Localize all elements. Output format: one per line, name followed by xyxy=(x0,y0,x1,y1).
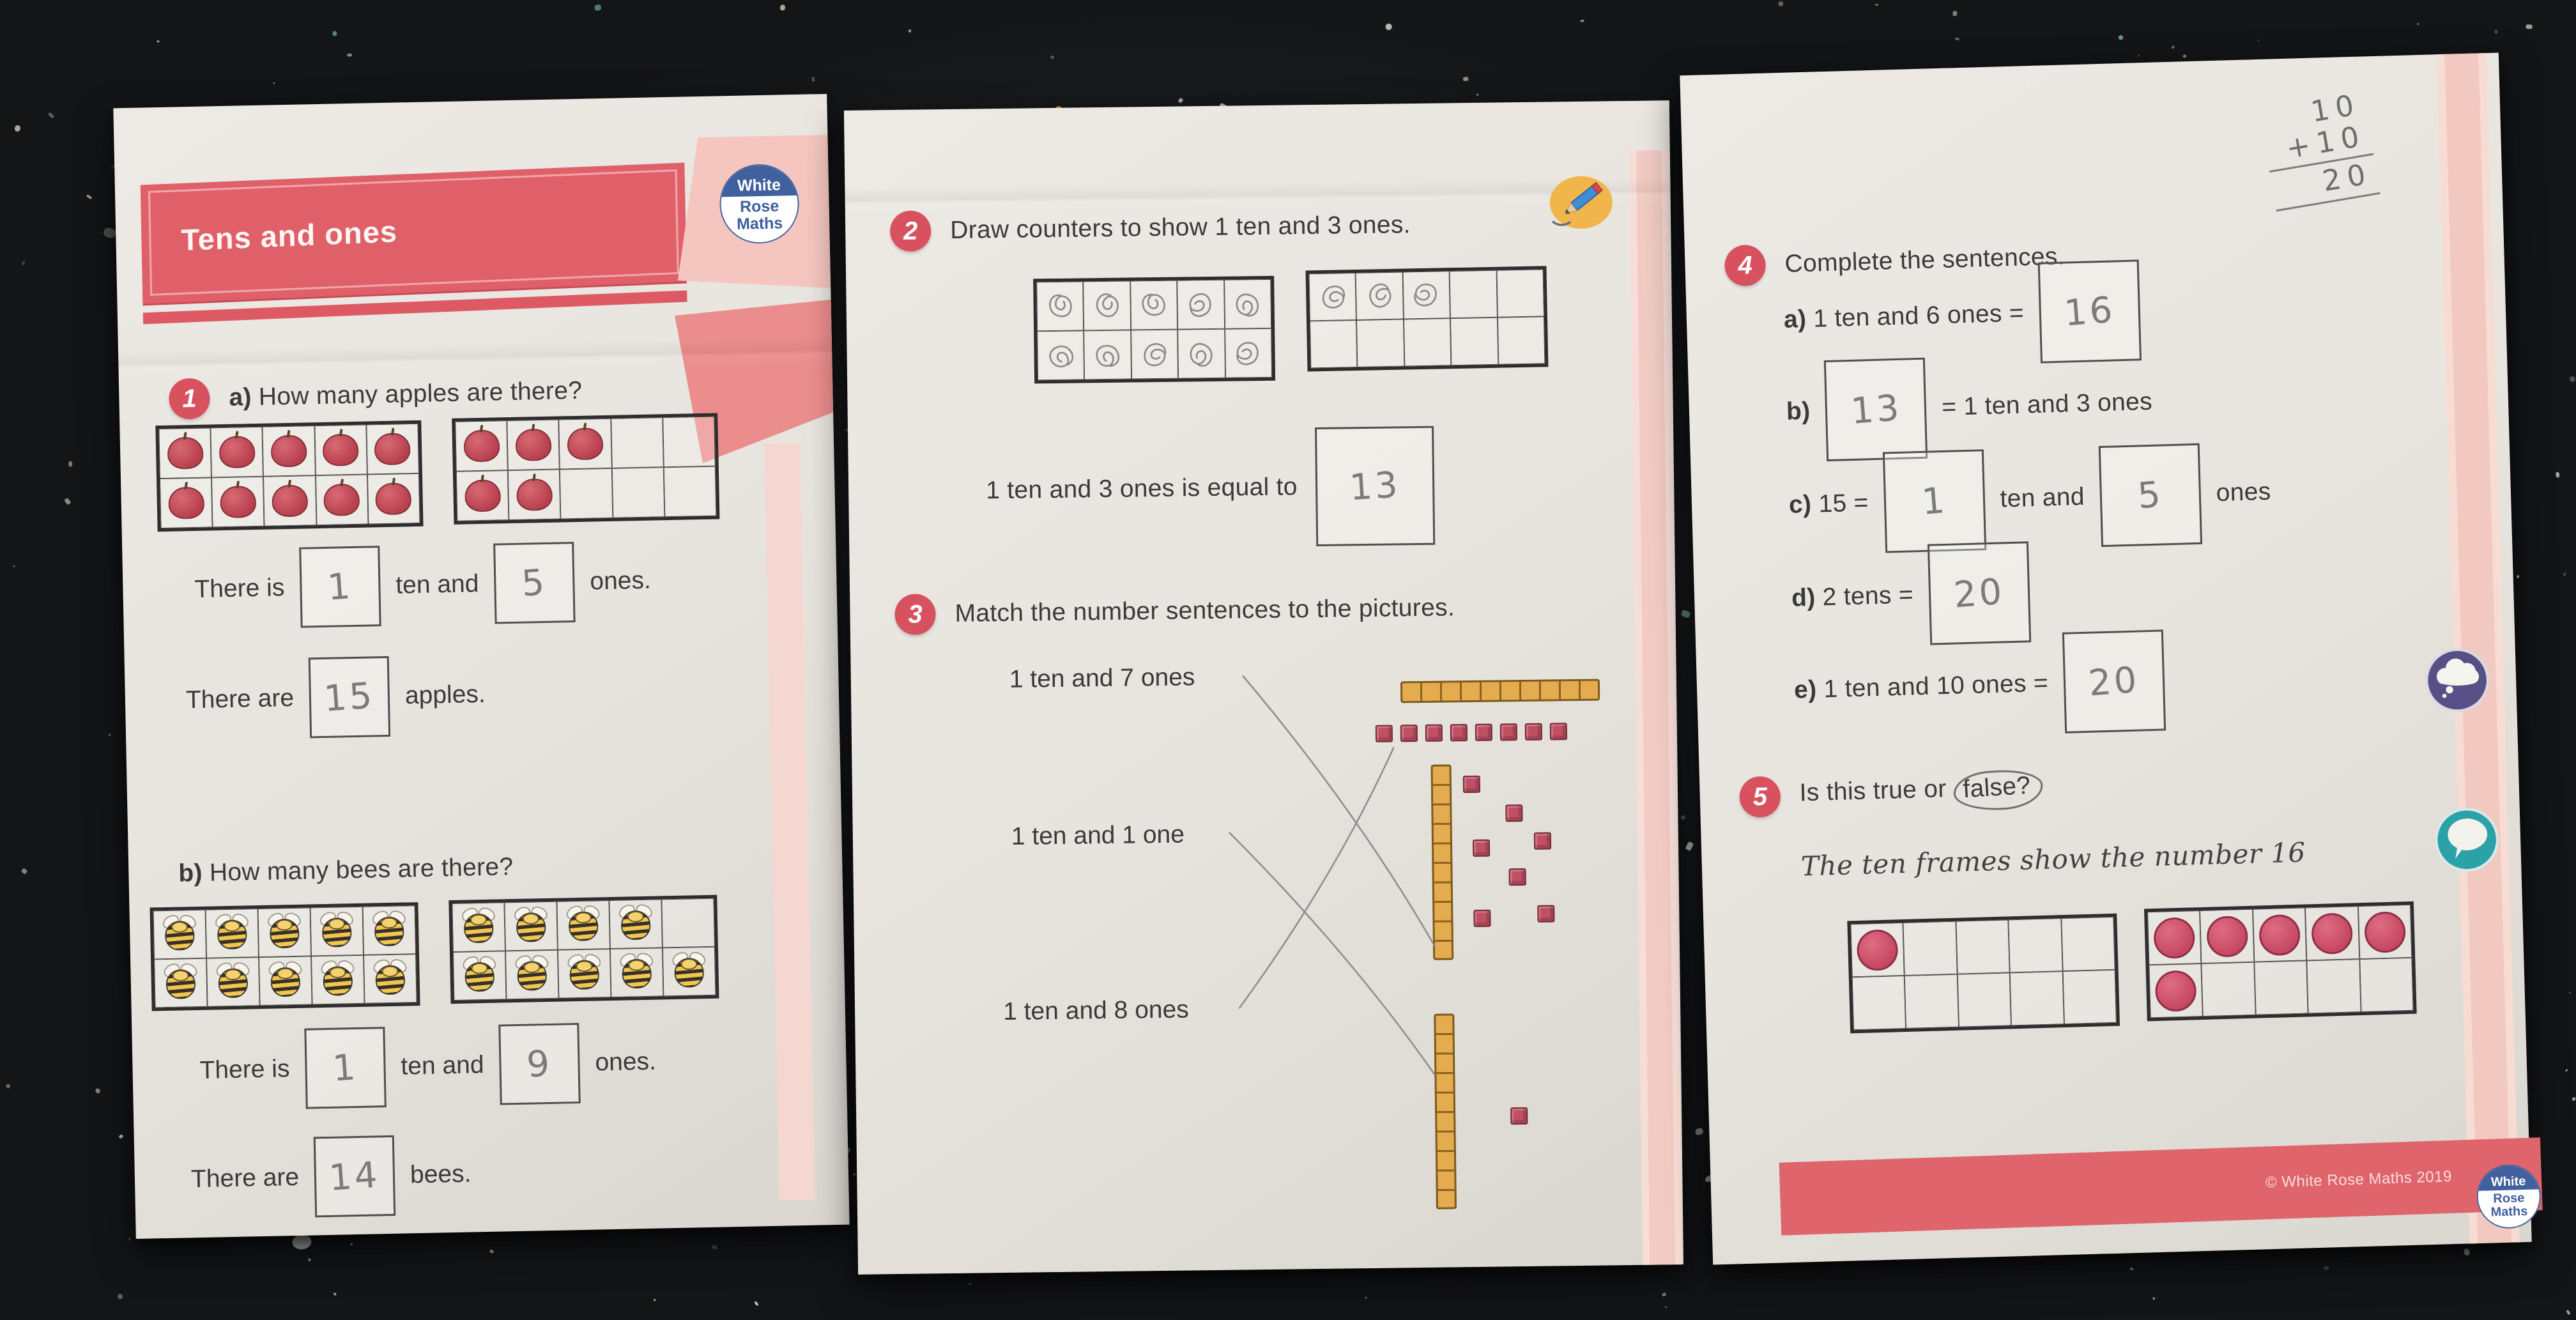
floor-speckle xyxy=(333,1292,337,1296)
floor-speckle xyxy=(1875,4,1878,6)
q4-row-e: e) 1 ten and 10 ones = 20 xyxy=(1793,629,2166,741)
ten-frame-cell xyxy=(1404,318,1452,366)
question-number-badge: 2 xyxy=(890,210,931,252)
ten-frame-cell xyxy=(1956,919,2010,974)
floor-speckle xyxy=(1687,1011,1687,1012)
worksheet-page-middle: 2 Draw counters to show 1 ten and 3 ones… xyxy=(844,100,1683,1275)
ones-cube xyxy=(1463,776,1480,793)
counter-dot xyxy=(2311,912,2354,955)
apple-icon xyxy=(168,487,204,519)
think-bubble-sticker xyxy=(2423,646,2492,714)
ten-frame-cell xyxy=(1356,319,1404,367)
answer-box: 13 xyxy=(1315,426,1435,546)
apple-icon xyxy=(323,434,359,466)
question-1b-text: b) How many bees are there? xyxy=(178,853,514,888)
apple-icon xyxy=(374,433,411,465)
ten-frame-cell xyxy=(1957,972,2011,1027)
ten-frame-cell xyxy=(456,470,509,521)
ones-cube xyxy=(1537,905,1554,922)
ten-frame-cell xyxy=(663,417,716,468)
ten-frame-cell xyxy=(452,902,505,952)
ten-frame-cell xyxy=(206,957,260,1007)
ten-frame-cell xyxy=(664,466,717,518)
ten-frame-cell xyxy=(2307,959,2361,1013)
floor-speckle xyxy=(2495,30,2498,34)
drawn-counter-scribble xyxy=(1090,337,1126,373)
apple-icon xyxy=(376,482,412,515)
answer-box: 14 xyxy=(314,1135,396,1218)
ten-frame-cell xyxy=(611,417,664,468)
sentence-total-apples: There are 15 apples. xyxy=(185,654,486,741)
ten-frame-cell xyxy=(310,907,364,956)
floor-speckle xyxy=(2569,992,2572,994)
counter-dot xyxy=(2206,915,2248,957)
ones-cube xyxy=(1510,1107,1528,1124)
ten-frame-cell xyxy=(505,950,559,1000)
floor-speckle xyxy=(86,194,93,200)
floor-speckle xyxy=(711,1245,717,1250)
ones-cube xyxy=(1508,868,1526,886)
ten-frame-cell xyxy=(558,949,611,999)
tens-rod xyxy=(1400,679,1600,703)
drawn-counter-scribble xyxy=(1232,337,1265,370)
apple-icon xyxy=(220,486,256,518)
floor-speckle xyxy=(930,1275,932,1276)
cube-row xyxy=(1376,723,1567,742)
tens-rod xyxy=(1430,764,1453,960)
floor-speckle xyxy=(2569,376,2576,383)
ten-frame-cell xyxy=(2359,958,2414,1012)
question-3-text: Match the number sentences to the pictur… xyxy=(954,594,1455,628)
answer-box: 1 xyxy=(304,1027,387,1109)
ten-frame-cell xyxy=(2305,906,2359,960)
ten-frame-cell xyxy=(153,910,207,960)
bee-icon xyxy=(462,960,498,992)
ones-cube xyxy=(1473,840,1490,857)
ten-frame-cell xyxy=(1224,279,1271,329)
logo-line-white: White xyxy=(720,165,797,197)
drawn-counter-scribble xyxy=(1045,291,1076,322)
ten-frame-drawn-part xyxy=(1305,266,1548,371)
ten-frame-cell xyxy=(2254,960,2308,1015)
tens-rod xyxy=(1434,1013,1457,1209)
floor-speckle xyxy=(2572,1096,2576,1101)
floor-speckle xyxy=(1666,1307,1667,1308)
ten-frame-apples-part xyxy=(452,413,719,525)
ten-frame-cell xyxy=(314,425,367,476)
floor-speckle xyxy=(908,29,912,33)
ten-frame-cell xyxy=(2061,917,2115,971)
ten-frame-cell xyxy=(1309,273,1357,321)
ones-cube xyxy=(1500,723,1517,741)
floor-speckle xyxy=(1581,20,1584,22)
pencil-circled-word: false? xyxy=(1952,767,2044,813)
bee-icon xyxy=(619,956,655,989)
floor-speckle xyxy=(350,1243,353,1246)
pencil-icon xyxy=(1544,165,1616,233)
floor-speckle xyxy=(2516,574,2520,579)
floor-speckle xyxy=(347,54,352,57)
ten-frame-cell xyxy=(158,427,211,479)
bee-icon xyxy=(671,955,707,988)
floor-speckle xyxy=(2566,1309,2571,1315)
bee-icon xyxy=(268,965,303,997)
floor-speckle xyxy=(68,461,72,467)
floor-speckle xyxy=(2257,40,2259,42)
white-rose-maths-logo: White Rose Maths xyxy=(719,164,799,244)
apple-icon xyxy=(464,479,501,512)
floor-speckle xyxy=(780,4,786,11)
floor-speckle xyxy=(968,1282,971,1285)
answer-box: 15 xyxy=(309,656,391,739)
ten-frame-cell xyxy=(366,424,419,475)
answer-box: 5 xyxy=(2099,443,2202,547)
floor-speckle xyxy=(332,31,337,36)
answer-box: 20 xyxy=(1928,541,2031,645)
question-5-header: 5 Is this true or false? xyxy=(1739,769,2044,818)
ten-frame-cell xyxy=(1177,329,1225,379)
ten-frame-cell xyxy=(2200,909,2254,963)
bee-icon xyxy=(215,966,251,999)
ten-frame-cell xyxy=(263,475,316,526)
bee-icon xyxy=(214,917,250,950)
floor-speckle xyxy=(2462,1248,2471,1257)
bee-icon xyxy=(162,918,197,951)
ones-cube xyxy=(1425,725,1443,742)
match-sentence-2: 1 ten and 1 one xyxy=(1011,821,1185,851)
ten-frame-cell xyxy=(661,898,715,948)
answer-box: 16 xyxy=(2038,259,2142,363)
counter-dot xyxy=(2155,970,2197,1012)
ten-frame-cell xyxy=(560,468,613,519)
floor-speckle xyxy=(118,1133,123,1139)
ten-frame-cell xyxy=(364,954,417,1004)
counter-dot xyxy=(2364,911,2406,953)
floor-speckle xyxy=(1050,55,1054,59)
ten-frame-cell xyxy=(2149,963,2203,1018)
ten-frame-cell xyxy=(508,469,561,520)
ten-frame-cell xyxy=(1225,328,1272,378)
ten-frame-cell xyxy=(2358,905,2412,959)
ten-frame-cell xyxy=(1356,272,1404,320)
floor-speckle xyxy=(21,868,28,875)
ones-cube xyxy=(1450,724,1468,741)
floor-speckle xyxy=(2183,55,2187,58)
ten-frame-cell xyxy=(1036,281,1084,331)
floor-speckle xyxy=(2138,55,2140,58)
question-2-text: Draw counters to show 1 ten and 3 ones. xyxy=(950,211,1411,245)
ten-frame-cell xyxy=(154,958,208,1008)
ten-frame-cell xyxy=(211,427,264,478)
apple-icon xyxy=(515,429,551,461)
floor-speckle xyxy=(14,125,22,132)
floor-speckle xyxy=(1685,841,1694,851)
ten-frame-cell xyxy=(1450,270,1498,318)
floor-speckle xyxy=(48,112,55,119)
floor-speckle xyxy=(2564,1069,2568,1071)
drawn-counter-scribble xyxy=(1183,335,1220,372)
ten-frame-cell xyxy=(1905,974,1959,1029)
ten-frame-cell xyxy=(507,419,560,470)
floor-speckle xyxy=(2152,1297,2154,1300)
floor-speckle xyxy=(2171,45,2175,49)
ten-frame-cell xyxy=(206,909,259,958)
copyright-text: © White Rose Maths 2019 xyxy=(2265,1168,2453,1192)
bee-icon xyxy=(320,963,356,996)
ones-cube xyxy=(1473,910,1491,927)
match-sentence-3: 1 ten and 8 ones xyxy=(1003,995,1189,1026)
floor-speckle xyxy=(2130,1268,2134,1271)
ten-frame-cell xyxy=(211,477,264,528)
ten-frame-cell xyxy=(2062,970,2117,1024)
floor-speckle xyxy=(811,77,815,82)
bee-icon xyxy=(266,916,302,949)
ten-frame-cell xyxy=(1498,316,1545,364)
ten-frame-cell xyxy=(1177,280,1224,330)
ten-frame-cell xyxy=(1084,281,1131,331)
footer-bar: © White Rose Maths 2019 xyxy=(1779,1137,2543,1235)
ones-cube xyxy=(1475,724,1492,741)
ten-frame-cell xyxy=(610,948,664,997)
bee-icon xyxy=(513,910,549,942)
floor-speckle xyxy=(653,1298,656,1301)
bee-icon xyxy=(372,963,408,995)
ten-frame-counters-1 xyxy=(1847,914,2120,1034)
floor-speckle xyxy=(1662,1293,1667,1298)
counter-dot xyxy=(2258,914,2301,956)
floor-speckle xyxy=(1385,23,1392,30)
question-2-header: 2 Draw counters to show 1 ten and 3 ones… xyxy=(890,204,1411,252)
title-banner: Tens and ones xyxy=(141,163,687,304)
floor-speckle xyxy=(2324,1266,2329,1270)
floor-speckle xyxy=(13,565,15,567)
answer-box: 13 xyxy=(1824,358,1928,461)
ten-frame-cell xyxy=(259,956,312,1006)
ten-frame-cell xyxy=(1402,271,1450,319)
drawn-counter-scribble xyxy=(1088,287,1126,325)
ten-frame-cell xyxy=(1852,976,1906,1030)
floor-speckle xyxy=(2418,23,2419,25)
floor-speckle xyxy=(21,261,26,266)
drawn-counter-scribble xyxy=(1040,335,1081,376)
page-edge-strip xyxy=(764,443,815,1201)
question-number-badge: 1 xyxy=(169,378,210,419)
ones-cube xyxy=(1400,725,1418,742)
ten-frame-cell xyxy=(2147,910,2202,965)
floor-speckle xyxy=(1680,815,1686,820)
match-sentence-1: 1 ten and 7 ones xyxy=(1009,663,1195,694)
bee-icon xyxy=(319,915,355,948)
drawn-counter-scribble xyxy=(1359,275,1400,316)
apple-icon xyxy=(463,429,500,462)
floor-speckle xyxy=(1695,1127,1704,1136)
ten-frame-cell xyxy=(1450,318,1498,365)
floor-speckle xyxy=(102,226,117,239)
ten-frame-cell xyxy=(609,899,663,949)
floor-speckle xyxy=(1952,11,1957,16)
ten-frame-cell xyxy=(2253,907,2307,962)
logo-line-white: White xyxy=(2477,1165,2539,1191)
apple-icon xyxy=(167,437,203,470)
question-1-header: 1 a) How many apples are there? xyxy=(169,371,583,420)
ten-frame-cell xyxy=(1310,320,1358,368)
question-3-header: 3 Match the number sentences to the pict… xyxy=(894,587,1455,635)
drawn-counter-scribble xyxy=(1232,288,1264,320)
ten-frame-cell xyxy=(1496,269,1544,317)
floor-speckle xyxy=(753,1301,758,1306)
floor-speckle xyxy=(157,40,160,43)
ten-frame-cell xyxy=(453,951,507,1001)
ten-frame-cell xyxy=(367,473,420,525)
drawn-counter-scribble xyxy=(1182,286,1220,323)
answer-box: 5 xyxy=(493,542,576,624)
ten-frame-cell xyxy=(1850,923,1905,977)
drawn-counter-scribble xyxy=(1411,279,1442,311)
floor-speckle xyxy=(2117,35,2124,40)
drawn-counter-scribble xyxy=(1138,339,1170,371)
ten-frame-cell xyxy=(663,947,716,997)
q4-row-c: c) 15 = 1 ten and 5 ones xyxy=(1788,441,2273,556)
worksheet-page-left: Tens and ones White Rose Maths 1 a) How … xyxy=(113,94,849,1239)
floor-speckle xyxy=(489,1249,494,1254)
ten-frame-cell xyxy=(258,907,312,957)
floor-speckle xyxy=(273,82,275,84)
counter-dot xyxy=(2154,917,2196,959)
logo-line-maths: Maths xyxy=(2478,1204,2540,1221)
bee-icon xyxy=(514,958,550,991)
ten-frame-cell xyxy=(455,420,508,472)
ones-cube xyxy=(1525,723,1542,741)
ten-frame-cell xyxy=(556,900,610,950)
ones-cube xyxy=(1534,833,1551,850)
ten-frame-cell xyxy=(611,467,664,518)
ones-cube xyxy=(1376,725,1393,742)
worksheet-page-right: 10 +10 20 4 Complete the sentences. a) 1… xyxy=(1680,52,2531,1264)
answer-box: 1 xyxy=(1882,449,1986,553)
answer-box: 9 xyxy=(498,1023,581,1105)
apple-icon xyxy=(271,434,307,467)
ten-frame-cell xyxy=(504,902,558,951)
floor-speckle xyxy=(853,1173,856,1176)
answer-box: 20 xyxy=(2062,629,2166,733)
ten-frame-bees-part xyxy=(448,895,719,1004)
ten-frame-counters-6 xyxy=(2144,902,2417,1022)
floor-speckle xyxy=(117,1293,123,1300)
floor-speckle xyxy=(1365,1297,1367,1299)
question-number-badge: 3 xyxy=(894,594,936,635)
ten-frame-cell xyxy=(1131,330,1178,380)
ones-cube xyxy=(1505,804,1522,822)
ten-frame-cell xyxy=(1130,280,1177,330)
q4-row-d: d) 2 tens = 20 xyxy=(1790,541,2031,648)
question-1a-text: a) How many apples are there? xyxy=(229,377,583,412)
floor-speckle xyxy=(2526,25,2532,30)
base-ten-picture-11 xyxy=(1430,1011,1650,1225)
apple-icon xyxy=(323,484,360,516)
ten-frame-cell xyxy=(2202,962,2256,1017)
sentence-total-bees: There are 14 bees. xyxy=(190,1133,472,1220)
ones-cube xyxy=(1550,723,1567,740)
apple-icon xyxy=(218,436,255,468)
floor-speckle xyxy=(6,1084,11,1088)
bee-icon xyxy=(565,909,601,941)
bee-icon xyxy=(618,908,654,940)
base-ten-picture-17 xyxy=(1427,762,1646,976)
floor-speckle xyxy=(63,498,71,505)
answer-box: 1 xyxy=(299,546,381,628)
ten-frame-bees-full xyxy=(149,902,420,1011)
floor-speckle xyxy=(292,1234,312,1250)
ten-frame-cell xyxy=(263,426,316,477)
bee-icon xyxy=(371,914,407,947)
question-number-badge: 4 xyxy=(1724,245,1767,287)
speech-bubble-sticker xyxy=(2433,806,2501,874)
counter-dot xyxy=(1857,929,1899,971)
pencil-column-addition: 10 +10 20 xyxy=(2252,88,2380,215)
floor-speckle xyxy=(308,1259,311,1261)
ten-frame-cell xyxy=(363,905,417,955)
ten-frame-cell xyxy=(311,955,365,1005)
page-title: Tens and ones xyxy=(181,213,397,257)
floor-speckle xyxy=(1681,610,1691,618)
drawn-counter-scribble xyxy=(1137,288,1171,322)
ten-frame-cell xyxy=(2009,918,2063,972)
ten-frame-cell xyxy=(2010,971,2064,1025)
floor-speckle xyxy=(1777,1,1784,8)
ten-frame-cell xyxy=(559,418,612,470)
question-number-badge: 5 xyxy=(1739,776,1781,818)
ten-frame-cell xyxy=(160,477,213,528)
floor-speckle xyxy=(109,734,111,736)
ten-frame-drawn-full xyxy=(1033,276,1275,384)
ten-frame-cell xyxy=(316,475,369,526)
drawn-counter-scribble xyxy=(1318,282,1348,312)
pencil-match-line xyxy=(1230,831,1435,1077)
question-1b-header: b) How many bees are there? xyxy=(178,853,514,888)
floor-speckle xyxy=(1463,77,1469,82)
ten-frame-cell xyxy=(1084,330,1131,380)
floor-speckle xyxy=(95,1087,102,1094)
q5-statement: The ten frames show the number 16 xyxy=(1800,836,2306,882)
floor-speckle xyxy=(594,4,601,12)
floor-speckle xyxy=(1177,97,1183,104)
apple-icon xyxy=(567,427,604,460)
bee-icon xyxy=(567,957,602,990)
floor-speckle xyxy=(1289,1278,1291,1279)
ten-frame-cell xyxy=(1903,921,1958,976)
apple-icon xyxy=(272,484,308,517)
ten-frame-apples-full xyxy=(155,420,423,532)
floor-speckle xyxy=(2563,572,2566,576)
logo-line-maths: Maths xyxy=(721,214,799,234)
pencil-match-line xyxy=(1236,748,1397,1008)
sentence-equal: 1 ten and 3 ones is equal to 13 xyxy=(985,426,1435,551)
floor-speckle xyxy=(128,1238,131,1241)
apple-icon xyxy=(516,479,553,511)
floor-speckle xyxy=(2556,472,2560,477)
sentence-tens-ones-bees: There is 1 ten and 9 ones. xyxy=(199,1022,657,1111)
floor-speckle xyxy=(1476,94,1479,97)
ten-frame-cell xyxy=(1037,330,1084,380)
bee-icon xyxy=(163,967,199,999)
bee-icon xyxy=(461,911,496,944)
sentence-tens-ones-apples: There is 1 ten and 5 ones. xyxy=(194,541,652,630)
floor-speckle xyxy=(1954,38,1959,41)
